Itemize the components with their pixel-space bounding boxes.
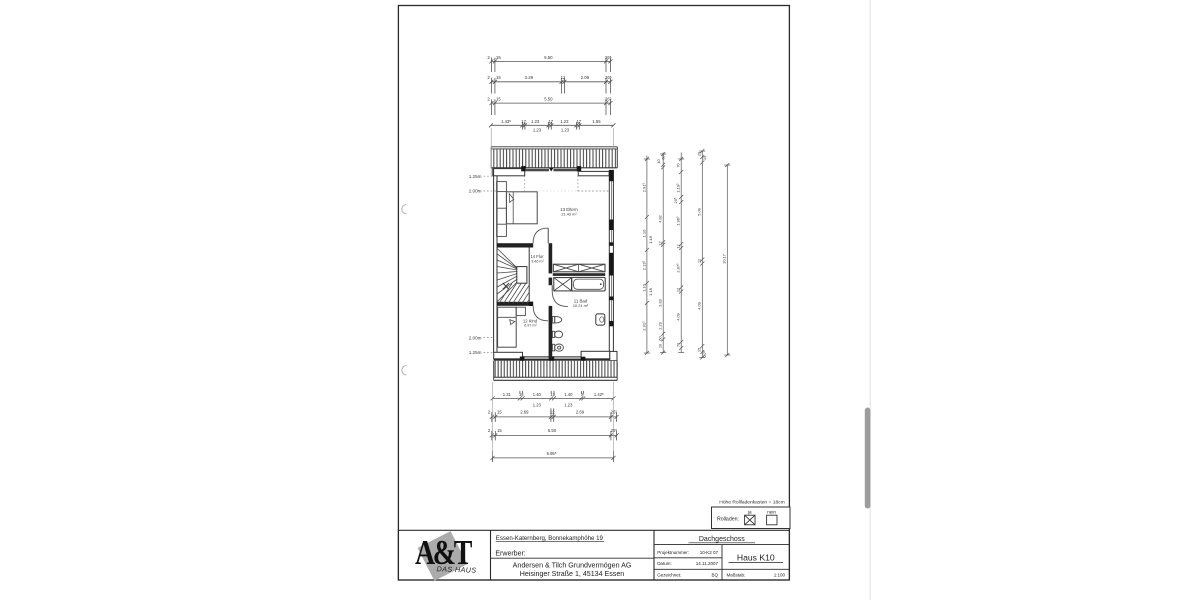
svg-text:2.69: 2.69 <box>576 409 585 414</box>
svg-text:3.29: 3.29 <box>525 75 534 80</box>
svg-text:15: 15 <box>702 156 707 160</box>
svg-text:Dachgeschoss: Dachgeschoss <box>699 536 745 543</box>
svg-text:4.09: 4.09 <box>697 302 702 310</box>
svg-text:1.25m: 1.25m <box>469 350 482 355</box>
svg-text:1.40: 1.40 <box>533 392 542 397</box>
svg-text:5.08: 5.08 <box>697 208 702 216</box>
svg-text:15: 15 <box>496 97 501 102</box>
svg-text:12: 12 <box>697 259 702 263</box>
svg-text:2.00m: 2.00m <box>469 335 482 340</box>
svg-text:10.17: 10.17 <box>722 253 727 264</box>
svg-text:3.83: 3.83 <box>658 299 663 307</box>
svg-text:14.11.2007: 14.11.2007 <box>696 561 719 566</box>
svg-text:nein: nein <box>767 510 776 515</box>
svg-text:1.23: 1.23 <box>560 119 569 124</box>
svg-text:5.50: 5.50 <box>548 428 557 433</box>
svg-text:17: 17 <box>576 119 581 124</box>
svg-text:15: 15 <box>697 348 702 352</box>
svg-text:Andersen & Tilch Grundvermögen: Andersen & Tilch Grundvermögen AG <box>513 562 632 570</box>
svg-text:4.82: 4.82 <box>658 215 663 223</box>
svg-text:19: 19 <box>550 392 555 397</box>
svg-text:12 Kind: 12 Kind <box>523 318 538 323</box>
svg-text:2.00m: 2.00m <box>469 189 482 194</box>
svg-text:2.09: 2.09 <box>581 75 590 80</box>
svg-text:Projektnummer:: Projektnummer: <box>657 550 689 555</box>
svg-text:Datum:: Datum: <box>657 561 672 566</box>
svg-text:14 Flur: 14 Flur <box>530 254 544 259</box>
svg-text:4.09: 4.09 <box>676 313 681 321</box>
svg-text:Höhe Rollladenkasten = 18cm: Höhe Rollladenkasten = 18cm <box>719 500 784 506</box>
svg-text:5.50: 5.50 <box>544 55 553 60</box>
svg-text:6.97 m²: 6.97 m² <box>524 324 537 328</box>
svg-text:BQ: BQ <box>711 572 718 577</box>
svg-text:Erwerber:: Erwerber: <box>495 550 525 557</box>
svg-text:1.23: 1.23 <box>561 128 570 133</box>
svg-text:10-K2 07: 10-K2 07 <box>700 550 719 555</box>
svg-text:5.50: 5.50 <box>544 97 553 102</box>
svg-text:Maßstab:: Maßstab: <box>727 572 746 577</box>
svg-text:1.18: 1.18 <box>648 287 653 296</box>
svg-text:15: 15 <box>519 392 524 397</box>
svg-text:12: 12 <box>676 244 681 248</box>
svg-text:15: 15 <box>496 55 501 60</box>
svg-text:17: 17 <box>521 119 526 124</box>
svg-text:DAS HAUS: DAS HAUS <box>436 564 476 574</box>
svg-text:12: 12 <box>658 241 663 245</box>
svg-text:Rolladen:: Rolladen: <box>717 516 739 522</box>
svg-text:1.25m: 1.25m <box>469 174 482 179</box>
svg-text:1.23: 1.23 <box>533 128 542 133</box>
svg-text:15: 15 <box>497 428 502 433</box>
svg-text:Heisinger Straße 1, 45134 Esse: Heisinger Straße 1, 45134 Essen <box>520 570 625 578</box>
svg-text:2.29: 2.29 <box>658 322 663 330</box>
svg-text:10.21 m²: 10.21 m² <box>573 303 589 308</box>
svg-text:2.69: 2.69 <box>520 409 529 414</box>
svg-text:1.23: 1.23 <box>564 402 573 407</box>
svg-text:17: 17 <box>548 119 553 124</box>
svg-text:12: 12 <box>676 288 681 292</box>
svg-text:1.10: 1.10 <box>641 283 646 292</box>
svg-text:15: 15 <box>497 409 502 414</box>
svg-text:Haus K10: Haus K10 <box>737 552 775 562</box>
svg-text:15: 15 <box>496 75 501 80</box>
svg-text:1:100: 1:100 <box>774 572 786 577</box>
svg-text:21.43 m²: 21.43 m² <box>561 212 577 217</box>
svg-text:1.23: 1.23 <box>531 119 540 124</box>
svg-text:Essen-Katernberg, Bonnekamphöh: Essen-Katernberg, Bonnekamphöhe 19 <box>496 535 604 542</box>
svg-text:1.23: 1.23 <box>533 402 542 407</box>
svg-text:12: 12 <box>561 75 566 80</box>
svg-text:Gezeichnet:: Gezeichnet: <box>657 572 681 577</box>
svg-text:1.40: 1.40 <box>564 392 573 397</box>
svg-text:ja: ja <box>747 510 752 515</box>
svg-text:29: 29 <box>697 152 702 156</box>
svg-text:12: 12 <box>550 409 555 414</box>
svg-text:1.18: 1.18 <box>648 235 653 244</box>
svg-text:1.31: 1.31 <box>503 392 512 397</box>
svg-text:1.55: 1.55 <box>592 119 601 124</box>
svg-text:1.10: 1.10 <box>641 229 646 238</box>
svg-text:3.46 m²: 3.46 m² <box>531 259 544 263</box>
